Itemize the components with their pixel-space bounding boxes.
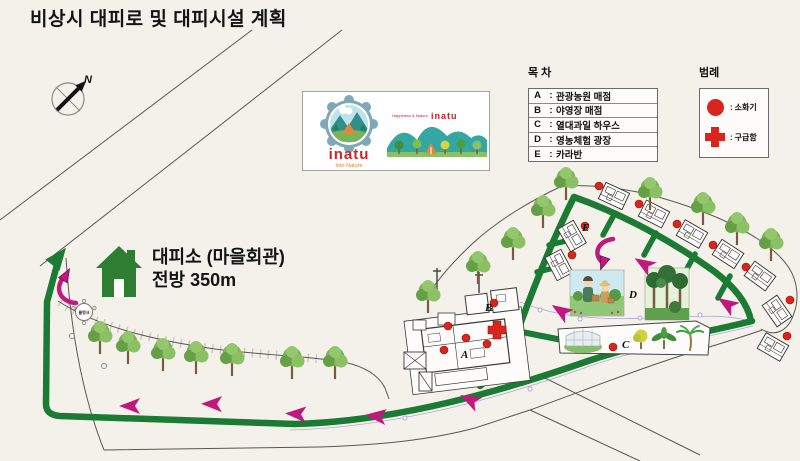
water-tank-label: 물탱크 bbox=[78, 309, 89, 315]
fire-extinguisher-marker bbox=[483, 340, 491, 348]
shed-x bbox=[404, 352, 426, 369]
page-title: 비상시 대피로 및 대피시설 계획 bbox=[30, 4, 287, 31]
compass: N bbox=[52, 74, 93, 115]
index-heading: 목 차 bbox=[528, 64, 551, 80]
shelter-house-icon bbox=[96, 246, 142, 298]
farming-photo bbox=[570, 270, 624, 316]
brand-subtitle: Into Nature bbox=[335, 163, 362, 169]
light-poles bbox=[433, 268, 483, 293]
legend-label: 구급함 bbox=[735, 132, 757, 143]
tree-icon bbox=[220, 343, 245, 376]
index-label: 카라반 bbox=[556, 147, 582, 161]
label-c: C bbox=[622, 339, 630, 351]
tree-icon bbox=[466, 251, 491, 284]
index-key: D bbox=[529, 134, 546, 145]
shelter-note: 대피소 (마을회관) 전방 350m bbox=[96, 246, 285, 298]
route-exit-arrow bbox=[45, 242, 73, 270]
fire-extinguisher-marker bbox=[595, 182, 603, 190]
fire-extinguisher-marker bbox=[568, 251, 576, 259]
tree-icon bbox=[725, 212, 750, 245]
legend-heading: 범례 bbox=[699, 64, 719, 80]
fire-extinguisher-marker bbox=[462, 334, 470, 342]
tree-icon bbox=[88, 321, 113, 354]
index-label: 영농체험 광장 bbox=[556, 133, 611, 147]
shelter-line2: 전방 350m bbox=[152, 269, 285, 292]
index-label: 야영장 매점 bbox=[556, 103, 602, 117]
brand-name-right: inatu bbox=[431, 111, 458, 121]
index-colon: : bbox=[546, 149, 556, 160]
index-row: B : 야영장 매점 bbox=[529, 104, 657, 119]
fire-extinguisher-marker bbox=[673, 220, 681, 228]
compass-north-label: N bbox=[84, 74, 93, 86]
shed bbox=[413, 320, 426, 330]
legend-row-firstaid: : 구급함 bbox=[700, 126, 768, 148]
index-key: C bbox=[529, 119, 546, 130]
node-marker bbox=[403, 416, 407, 420]
node-marker bbox=[698, 313, 702, 317]
index-key: B bbox=[529, 105, 546, 116]
forest-photo bbox=[645, 265, 689, 320]
legend-box: : 소화기 : 구급함 bbox=[699, 88, 769, 158]
fire-extinguisher-marker bbox=[444, 322, 452, 330]
legend-colon: : bbox=[730, 103, 733, 112]
index-row: D : 영농체험 광장 bbox=[529, 133, 657, 148]
index-row: E : 카라반 bbox=[529, 147, 657, 161]
brand-logo-graphic: inatu Into Nature Happiness & Nature bbox=[303, 92, 489, 170]
brand-tagline: Happiness & Nature bbox=[392, 113, 429, 118]
evacuation-plan-page: 물탱크 bbox=[0, 0, 800, 461]
label-a: A bbox=[460, 349, 468, 361]
index-label: 열대과일 하우스 bbox=[556, 118, 620, 132]
brand-name: inatu bbox=[329, 146, 370, 163]
node-marker bbox=[638, 316, 642, 320]
shed-slash bbox=[419, 372, 432, 391]
index-row: A : 관광농원 매점 bbox=[529, 89, 657, 104]
tree-icon bbox=[151, 338, 176, 371]
fire-extinguisher-marker bbox=[609, 343, 617, 351]
label-d: D bbox=[628, 289, 637, 301]
tree-icon bbox=[691, 192, 716, 225]
legend-row-fire: : 소화기 bbox=[700, 98, 768, 117]
route-arrow bbox=[285, 405, 307, 422]
small-circle-marker bbox=[101, 363, 106, 368]
fire-extinguisher-icon bbox=[700, 98, 730, 117]
tree-icon bbox=[116, 331, 141, 364]
fire-extinguisher-marker bbox=[742, 263, 750, 271]
fire-extinguisher-marker bbox=[440, 346, 448, 354]
index-colon: : bbox=[546, 134, 556, 145]
index-key: A bbox=[529, 90, 546, 101]
route-arrow bbox=[119, 398, 140, 414]
inatu-landscape-icon: Happiness & Nature inatu bbox=[387, 111, 487, 157]
brand-logo-box: inatu Into Nature Happiness & Nature bbox=[302, 91, 490, 171]
fire-extinguisher-marker bbox=[635, 200, 643, 208]
label-b: B bbox=[484, 302, 492, 314]
node-marker bbox=[528, 387, 532, 391]
index-colon: : bbox=[546, 90, 556, 101]
site-map: 물탱크 bbox=[0, 0, 800, 461]
shelter-text: 대피소 (마을회관) 전방 350m bbox=[152, 246, 285, 291]
fire-extinguisher-marker bbox=[786, 296, 794, 304]
index-label: 관광농원 매점 bbox=[556, 89, 611, 103]
node-marker bbox=[578, 317, 582, 321]
fire-extinguisher-marker bbox=[783, 332, 791, 340]
curved-route-arrow bbox=[59, 266, 76, 303]
curved-route-arrow bbox=[596, 239, 613, 271]
route-arrow bbox=[201, 396, 222, 412]
legend-label: 소화기 bbox=[735, 102, 757, 113]
node-marker bbox=[538, 308, 542, 312]
tropical-fruit-house bbox=[558, 321, 710, 355]
small-circle-marker bbox=[69, 333, 74, 338]
tree-icon bbox=[280, 346, 305, 379]
index-colon: : bbox=[546, 119, 556, 130]
legend-colon: : bbox=[730, 133, 733, 142]
index-key: E bbox=[529, 149, 546, 160]
index-colon: : bbox=[546, 105, 556, 116]
index-row: C : 열대과일 하우스 bbox=[529, 118, 657, 133]
index-table: A : 관광농원 매점 B : 야영장 매점 C : 열대과일 하우스 D : … bbox=[528, 88, 658, 162]
inatu-badge-icon: inatu Into Nature bbox=[320, 95, 378, 169]
first-aid-icon bbox=[700, 126, 730, 148]
fire-extinguisher-marker bbox=[709, 241, 717, 249]
tree-icon bbox=[501, 227, 526, 260]
shelter-line1: 대피소 (마을회관) bbox=[152, 246, 285, 269]
label-e: E bbox=[581, 222, 589, 234]
tree-icon bbox=[323, 346, 348, 379]
